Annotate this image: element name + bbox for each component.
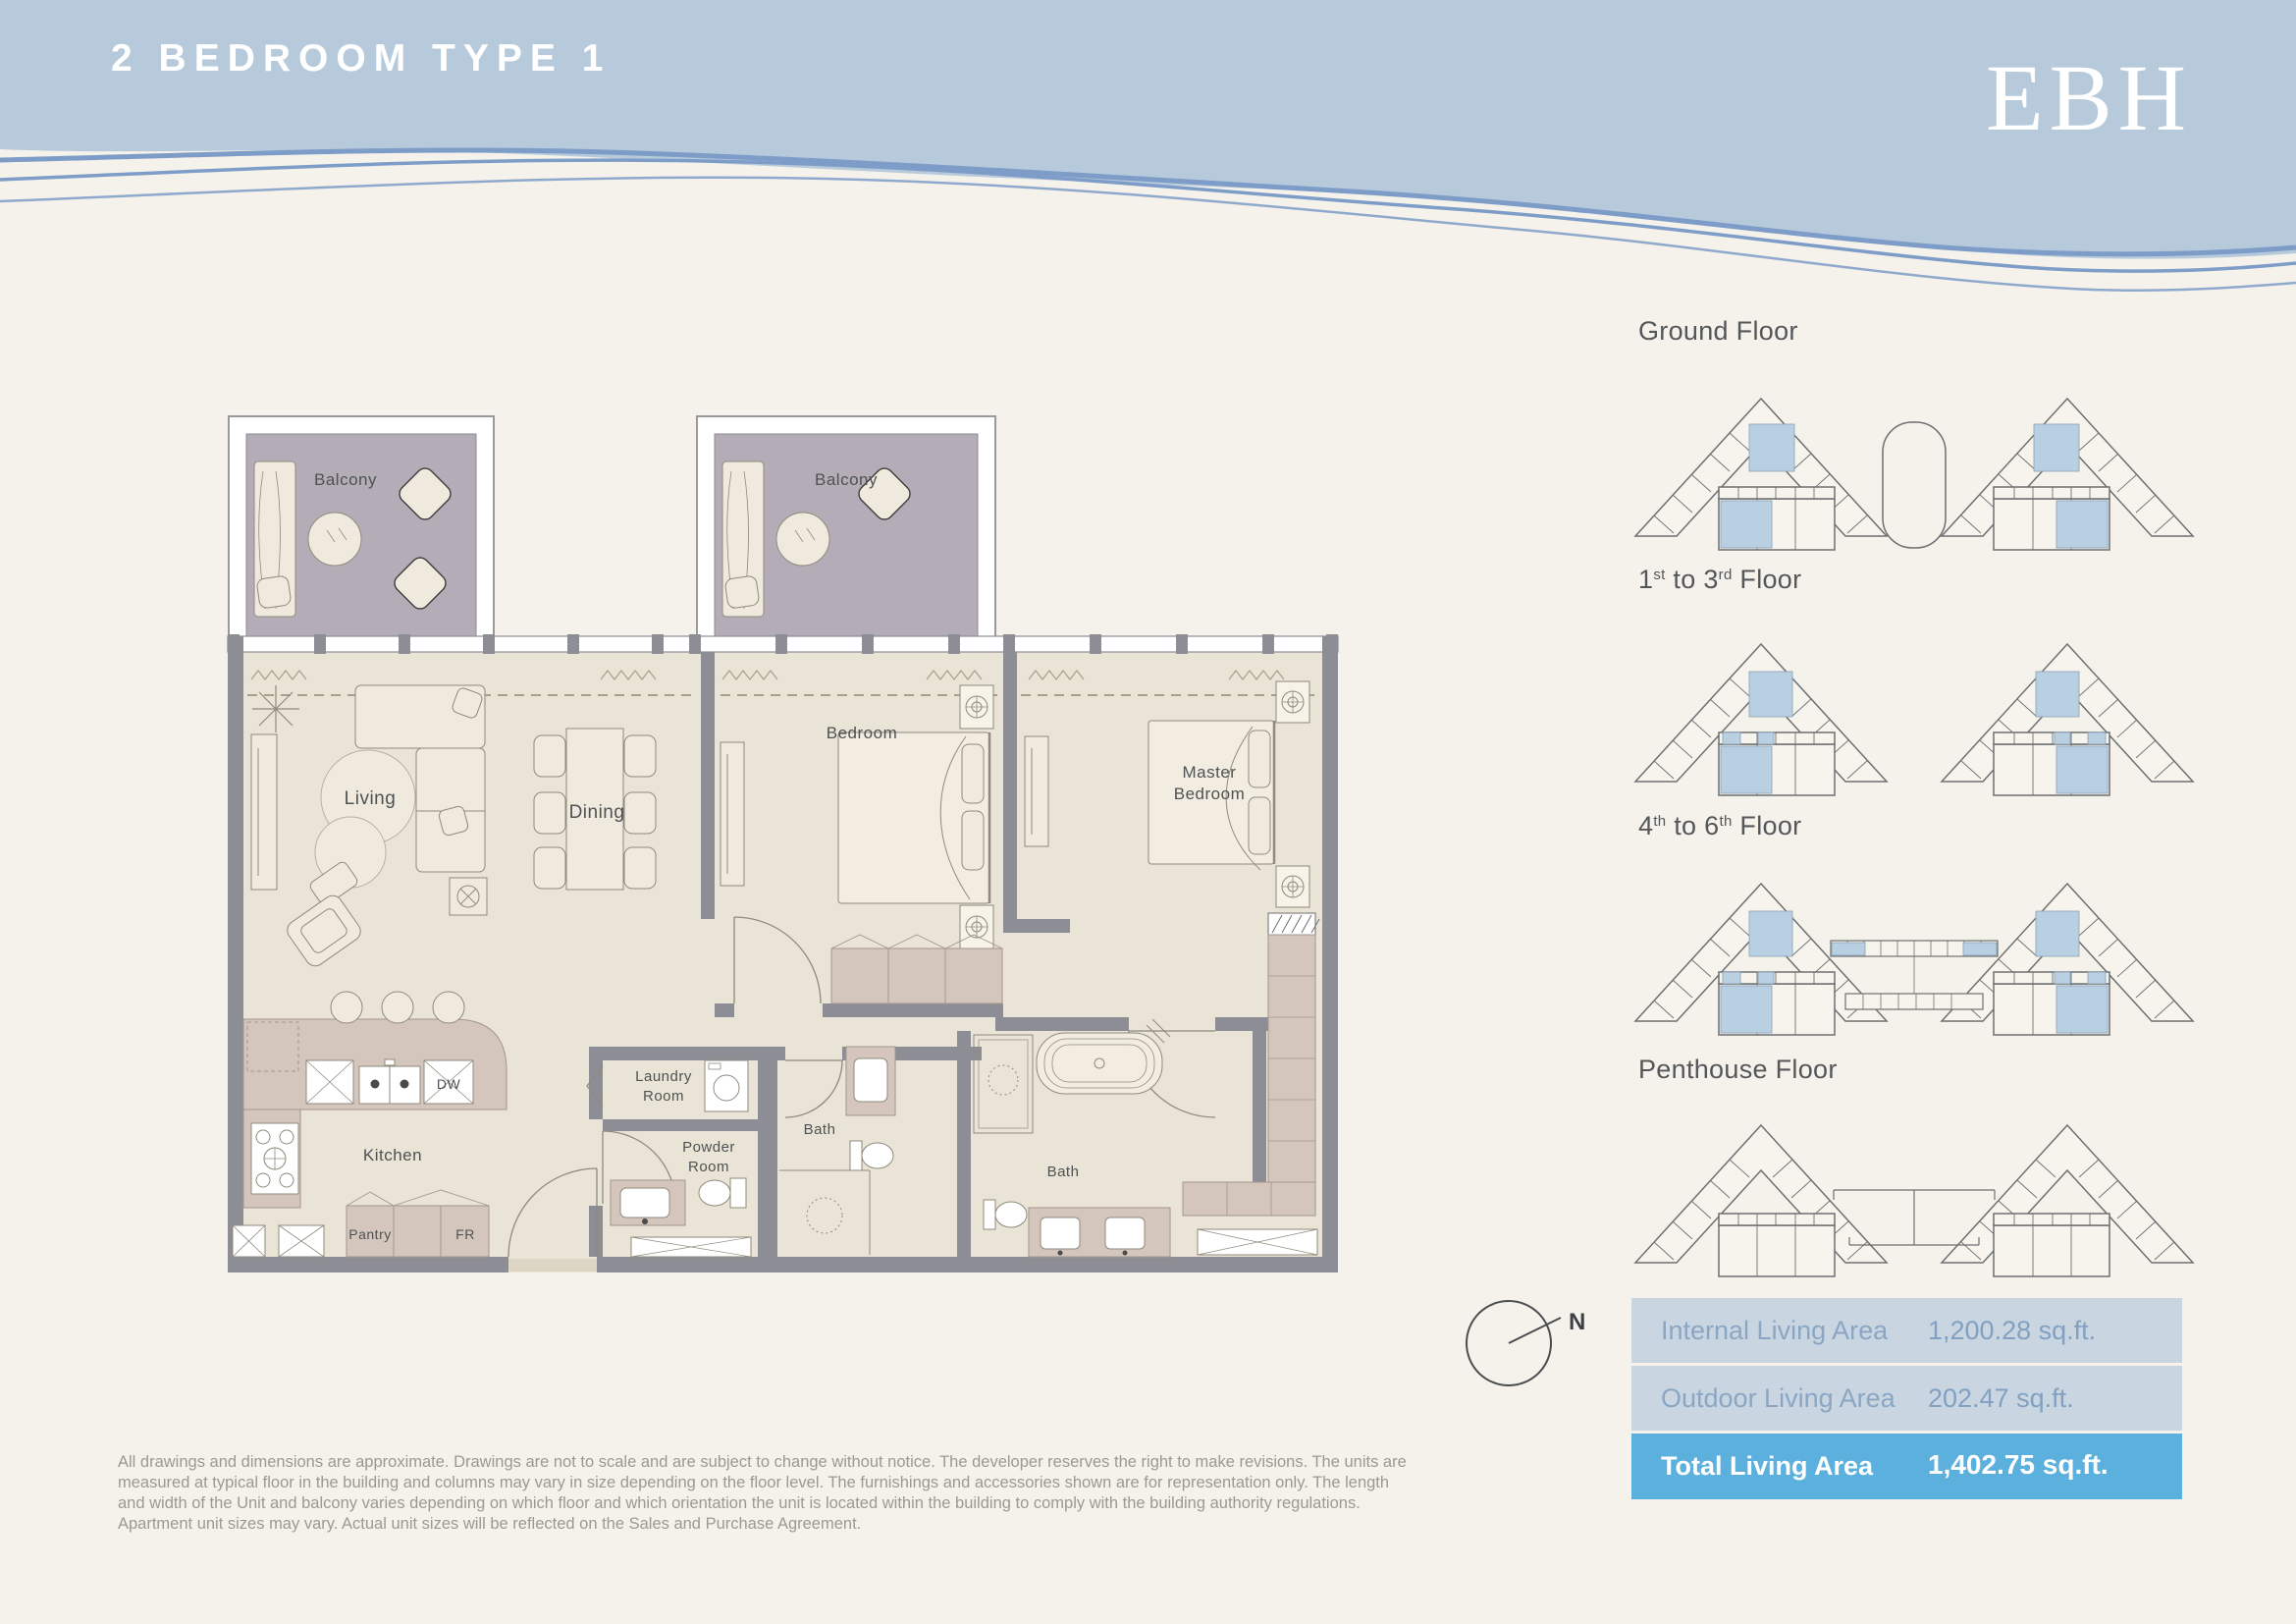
bar-stool [382,992,413,1023]
area-total-value: 1,402.75 sq.ft. [1928,1449,2109,1481]
nightstand [960,685,993,729]
floor-1-3-diagram [1620,607,2209,798]
table-row: Internal Living Area 1,200.28 sq.ft. [1631,1298,2182,1363]
nightstand [1276,866,1309,907]
pillow [1249,731,1270,787]
round-table [776,513,829,566]
floor-label-1-3: 1st to 3rd Floor [1638,565,1801,595]
pillow [962,811,984,870]
table-row: Outdoor Living Area 202.47 sq.ft. [1631,1366,2182,1431]
floor-label-text: Ground Floor [1638,316,1798,346]
kitchen-sink [359,1059,420,1104]
linen-box [1198,1229,1317,1255]
area-total-label: Total Living Area [1661,1451,1873,1482]
tv-console [251,734,277,890]
dining-label: Dining [569,802,625,823]
table-row-total: Total Living Area 1,402.75 sq.ft. [1631,1434,2182,1499]
pantry-label: Pantry [348,1226,391,1242]
compass-north-label: N [1569,1309,1585,1335]
powder-label-1: Powder [682,1139,735,1156]
sink [854,1058,887,1102]
floor-label-penthouse: Penthouse Floor [1638,1055,1838,1085]
balcony-right-label: Balcony [815,470,878,489]
area-label: Outdoor Living Area [1661,1383,1896,1414]
disclaimer-text: All drawings and dimensions are approxim… [118,1452,1412,1535]
sink [620,1188,669,1218]
double-vanity [1029,1208,1170,1257]
pillow [1249,797,1270,854]
balcony-left: Balcony [229,416,494,638]
laundry-label-2: Room [643,1088,684,1105]
bar-stool [331,992,362,1023]
toilet [984,1200,1027,1229]
compass-icon: N [1453,1286,1610,1404]
laundry-label-1: Laundry [635,1068,692,1085]
living-label: Living [345,788,397,809]
pool-outline [1883,422,1946,548]
powder-label-2: Room [688,1159,729,1175]
floor-plan: Balcony Balcony [221,407,1350,1281]
linen-box [631,1237,751,1257]
area-table: Internal Living Area 1,200.28 sq.ft. Out… [1631,1298,2182,1499]
area-label: Internal Living Area [1661,1316,1888,1346]
bath1-label: Bath [804,1121,836,1138]
penthouse-diagram [1620,1088,2209,1279]
bedroom-label: Bedroom [827,724,897,742]
toilet [699,1178,746,1208]
balcony-left-label: Balcony [314,470,377,489]
floor-label-text: Penthouse Floor [1638,1055,1838,1084]
ground-floor-diagram [1620,361,2209,553]
counter-cabinet [306,1060,353,1104]
service-shaft [233,1225,324,1257]
stove [251,1123,298,1194]
balcony-right: Balcony [697,416,995,638]
kitchen-label: Kitchen [363,1146,422,1164]
master-bedroom-label-2: Bedroom [1174,785,1245,803]
tv-console [1025,736,1048,846]
toilet [850,1141,893,1170]
hatched-duct [1268,913,1319,935]
brochure-page: 2 BEDROOM TYPE 1 EBH Balcony [0,0,2296,1624]
floor-label-4-6: 4th to 6th Floor [1638,811,1801,841]
master-bedroom-label-1: Master [1183,763,1237,782]
tv-console [721,742,744,886]
floor-4-6-diagram [1620,846,2209,1038]
area-value: 202.47 sq.ft. [1928,1383,2074,1414]
area-value: 1,200.28 sq.ft. [1928,1316,2096,1346]
round-table [308,513,361,566]
dining-area: Dining [534,729,656,890]
entrance-threshold [508,1259,597,1272]
bar-stool [433,992,464,1023]
floor-label-ground: Ground Floor [1638,316,1798,347]
fridge-label: FR [455,1226,475,1242]
plant-icon [252,685,299,732]
wardrobe [831,948,1002,1003]
pillow [962,744,984,803]
washer [705,1060,748,1111]
brand-logo: EBH [1981,43,2197,152]
page-title: 2 BEDROOM TYPE 1 [111,37,611,81]
bath2-label: Bath [1047,1164,1080,1180]
nightstand [1276,681,1309,723]
dishwasher-label: DW [437,1076,461,1092]
